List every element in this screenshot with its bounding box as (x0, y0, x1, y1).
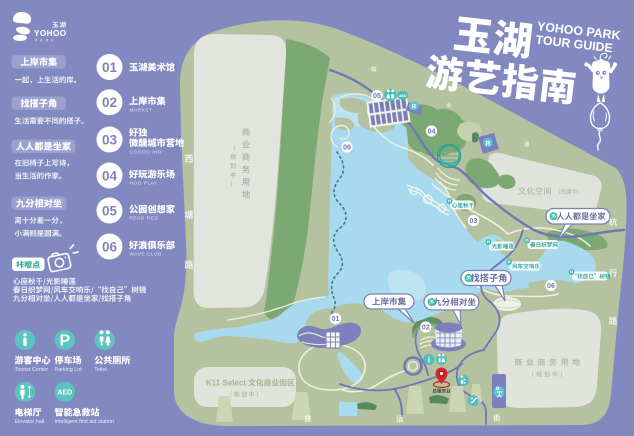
svg-text:06: 06 (102, 239, 118, 254)
svg-text:02: 02 (102, 95, 117, 110)
svg-text:i: i (428, 356, 430, 365)
svg-text:K11 Select: K11 Select (206, 379, 246, 388)
svg-text:05: 05 (373, 91, 381, 100)
svg-text:06: 06 (343, 143, 351, 152)
svg-text:COOOO IND: COOOO IND (130, 149, 163, 155)
svg-text:P: P (59, 333, 70, 350)
svg-text:04: 04 (102, 168, 118, 183)
svg-text:Intelligent first aid station: Intelligent first aid station (55, 419, 114, 425)
svg-text:Parking Lot: Parking Lot (55, 367, 83, 373)
svg-text:05: 05 (102, 203, 118, 218)
svg-text:PARK: PARK (35, 39, 57, 43)
svg-text:03: 03 (102, 132, 118, 147)
svg-text:Elevator hall: Elevator hall (15, 419, 45, 425)
svg-text:Tourist Center: Tourist Center (15, 367, 49, 373)
svg-text:01: 01 (102, 60, 118, 75)
svg-text:WAVE CLUB: WAVE CLUB (130, 252, 162, 258)
svg-text:Toilet: Toilet (94, 367, 107, 373)
svg-text:READ RED: READ RED (130, 216, 159, 222)
svg-text:01: 01 (332, 314, 340, 323)
svg-text:06: 06 (547, 281, 555, 290)
svg-text:HOO PLAY: HOO PLAY (130, 181, 158, 187)
svg-text:02: 02 (422, 323, 430, 332)
svg-text:R: R (486, 140, 491, 147)
svg-text:MARKET: MARKET (130, 108, 153, 114)
svg-text:YOHOO: YOHOO (34, 29, 67, 38)
svg-text:AED: AED (57, 390, 72, 397)
svg-text:04: 04 (428, 127, 436, 136)
svg-text:AED: AED (399, 94, 407, 98)
svg-text:03: 03 (470, 216, 478, 225)
svg-text:R: R (411, 104, 416, 111)
